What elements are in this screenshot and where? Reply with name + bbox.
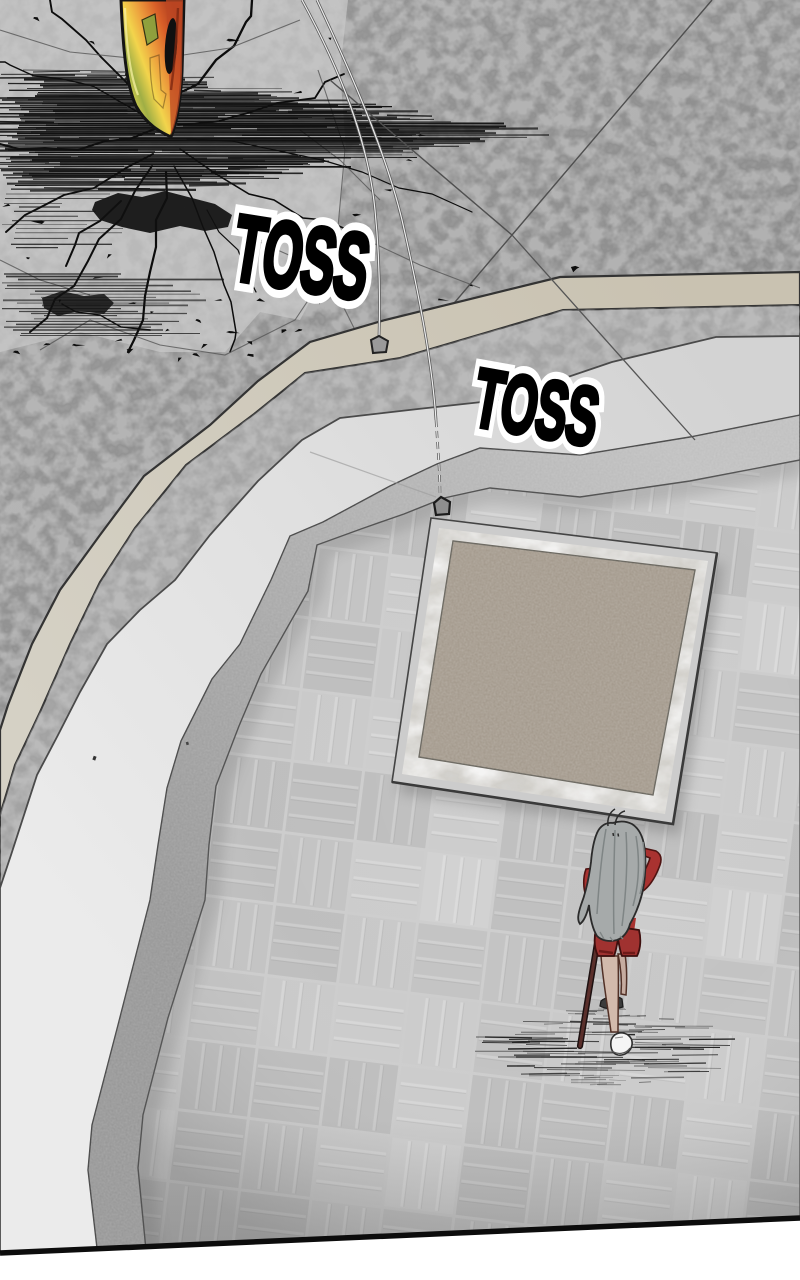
- svg-text:TOSS: TOSS: [226, 197, 376, 321]
